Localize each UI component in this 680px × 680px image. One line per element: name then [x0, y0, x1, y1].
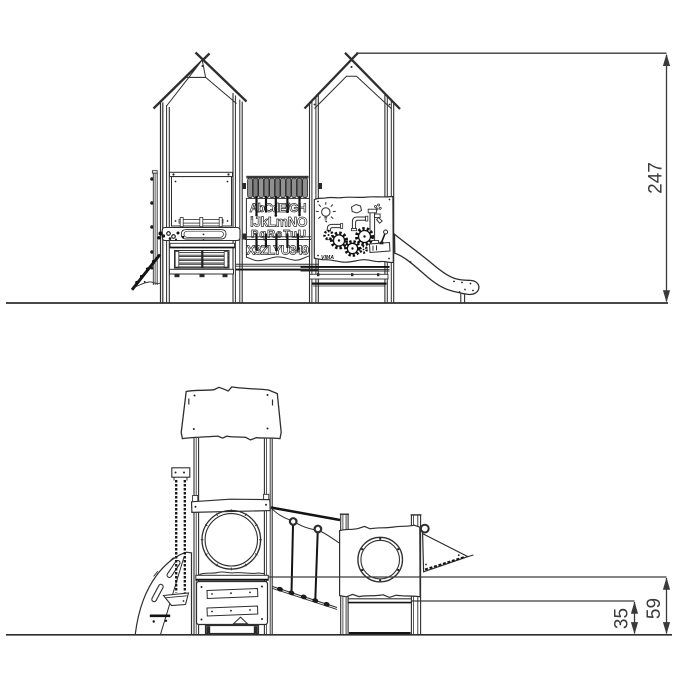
svg-text:59: 59	[644, 598, 665, 619]
svg-text:VIMA: VIMA	[321, 255, 334, 261]
svg-text:247: 247	[646, 162, 667, 194]
svg-text:AbCdEfGH: AbCdEfGH	[250, 201, 307, 215]
svg-text:35: 35	[612, 608, 633, 629]
svg-text:iJkLmNO: iJkLmNO	[250, 215, 308, 230]
